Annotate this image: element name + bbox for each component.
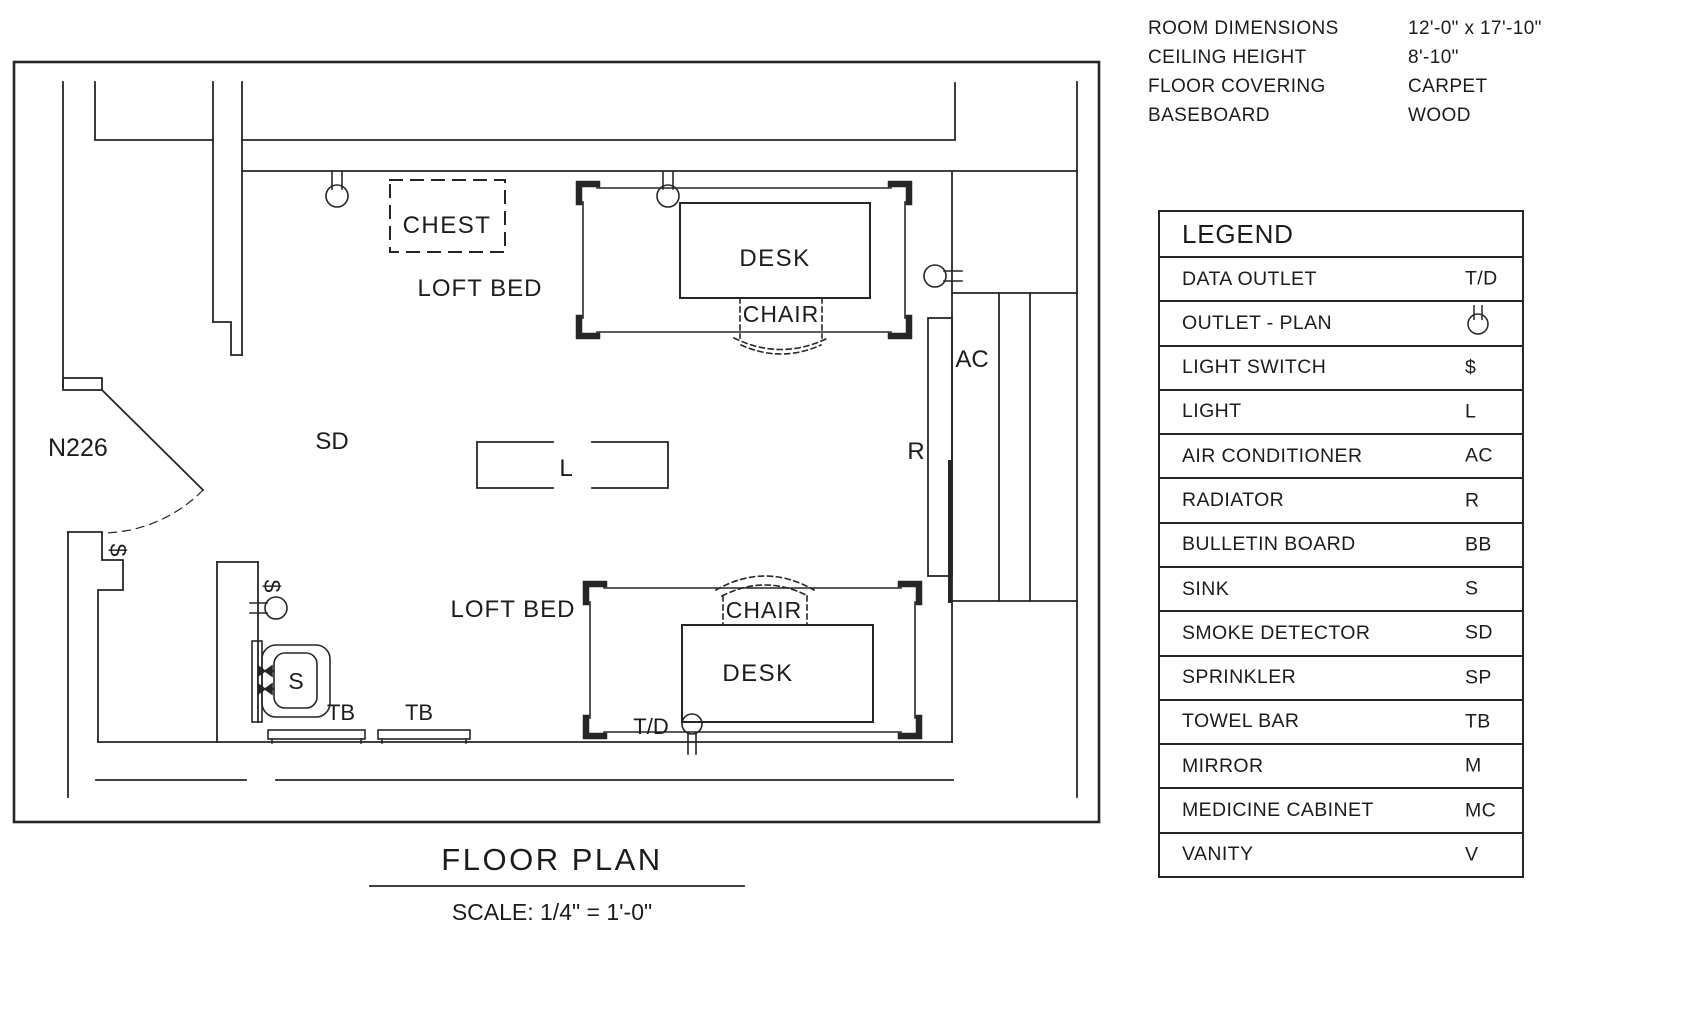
legend-label: SPRINKLER bbox=[1160, 666, 1296, 689]
legend-symbol: SP bbox=[1465, 666, 1492, 689]
legend-label: TOWEL BAR bbox=[1160, 710, 1299, 733]
legend-label: AIR CONDITIONER bbox=[1160, 445, 1362, 468]
ac-label: AC bbox=[955, 346, 988, 373]
outlet-bed-top bbox=[657, 172, 679, 207]
desk-bottom-label: DESK bbox=[722, 660, 793, 687]
floor-plan-sheet: N226 CHEST LOFT BED DESK CHAIR LOFT BED … bbox=[0, 0, 1682, 1026]
legend-label: SINK bbox=[1160, 578, 1229, 601]
legend-symbol: L bbox=[1465, 400, 1476, 423]
legend-label: LIGHT SWITCH bbox=[1160, 356, 1326, 379]
legend-row-medicine-cabinet: MEDICINE CABINET MC bbox=[1160, 789, 1522, 833]
legend-label: DATA OUTLET bbox=[1160, 268, 1317, 291]
light-switch-bath-label: $ bbox=[259, 580, 285, 593]
legend-row-air-conditioner: AIR CONDITIONER AC bbox=[1160, 435, 1522, 479]
radiator-label: R bbox=[907, 438, 924, 465]
desk-top-label: DESK bbox=[739, 245, 810, 272]
chest-label: CHEST bbox=[403, 212, 492, 239]
room-info-row: BASEBOARD WOOD bbox=[1148, 101, 1678, 130]
legend-symbol: R bbox=[1465, 489, 1479, 512]
loft-bed-bottom-label: LOFT BED bbox=[451, 596, 576, 623]
plan-title: FLOOR PLAN bbox=[441, 842, 662, 877]
legend-symbol: V bbox=[1465, 843, 1478, 866]
legend-row-radiator: RADIATOR R bbox=[1160, 479, 1522, 523]
legend-row-towel-bar: TOWEL BAR TB bbox=[1160, 701, 1522, 745]
chair-top-label: CHAIR bbox=[743, 301, 820, 327]
legend-title: LEGEND bbox=[1160, 212, 1522, 258]
outlet-top-wall bbox=[326, 171, 348, 207]
legend-table: LEGEND DATA OUTLET T/D OUTLET - PLAN LIG… bbox=[1158, 210, 1524, 878]
light-switch-door-label: $ bbox=[105, 544, 131, 557]
room-info-label: BASEBOARD bbox=[1148, 101, 1270, 130]
data-outlet-symbol bbox=[682, 714, 702, 754]
plan-scale-note: SCALE: 1/4" = 1'-0" bbox=[452, 899, 652, 925]
legend-row-outlet-plan: OUTLET - PLAN bbox=[1160, 302, 1522, 346]
sink-label: S bbox=[288, 668, 303, 694]
legend-row-sprinkler: SPRINKLER SP bbox=[1160, 657, 1522, 701]
legend-symbol: $ bbox=[1465, 356, 1476, 379]
radiator bbox=[928, 318, 952, 601]
legend-symbol: M bbox=[1465, 755, 1482, 778]
towel-bar-left bbox=[268, 730, 365, 743]
legend-symbol: SD bbox=[1465, 622, 1493, 645]
legend-label: LIGHT bbox=[1160, 400, 1241, 423]
legend-row-vanity: VANITY V bbox=[1160, 834, 1522, 876]
light-label: L bbox=[559, 455, 572, 482]
legend-row-data-outlet: DATA OUTLET T/D bbox=[1160, 258, 1522, 302]
loft-bed-top-label: LOFT BED bbox=[418, 275, 543, 302]
door-jamb bbox=[63, 378, 102, 390]
room-info-label: CEILING HEIGHT bbox=[1148, 43, 1307, 72]
smoke-detector-label: SD bbox=[315, 428, 348, 455]
duplex-outlet-icon bbox=[1465, 303, 1491, 343]
window-bay bbox=[952, 293, 1077, 601]
plan-outer-border bbox=[14, 62, 1099, 822]
outlet-right-wall bbox=[924, 265, 962, 287]
room-info-row: FLOOR COVERING CARPET bbox=[1148, 72, 1678, 101]
legend-symbol: MC bbox=[1465, 799, 1496, 822]
legend-row-bulletin-board: BULLETIN BOARD BB bbox=[1160, 524, 1522, 568]
legend-label: BULLETIN BOARD bbox=[1160, 533, 1356, 556]
legend-label: VANITY bbox=[1160, 843, 1253, 866]
chair-bottom-label: CHAIR bbox=[726, 597, 803, 623]
room-info-row: ROOM DIMENSIONS 12'-0" x 17'-10" bbox=[1148, 14, 1678, 43]
legend-symbol: BB bbox=[1465, 533, 1492, 556]
walls bbox=[63, 82, 1077, 797]
door-swing bbox=[102, 390, 203, 533]
legend-label: MEDICINE CABINET bbox=[1160, 799, 1374, 822]
legend-label: OUTLET - PLAN bbox=[1160, 312, 1332, 335]
legend-symbol: T/D bbox=[1465, 268, 1498, 291]
room-info-value: 12'-0" x 17'-10" bbox=[1408, 14, 1542, 43]
legend-row-light: LIGHT L bbox=[1160, 391, 1522, 435]
legend-label: SMOKE DETECTOR bbox=[1160, 622, 1370, 645]
legend-label: RADIATOR bbox=[1160, 489, 1284, 512]
towel-bar-right bbox=[378, 730, 470, 743]
room-info-value: CARPET bbox=[1408, 72, 1487, 101]
legend-row-smoke-detector: SMOKE DETECTOR SD bbox=[1160, 612, 1522, 656]
legend-row-sink: SINK S bbox=[1160, 568, 1522, 612]
towel-bar-right-label: TB bbox=[405, 700, 433, 725]
outlet-bath-wall bbox=[250, 597, 287, 619]
legend-symbol: AC bbox=[1465, 445, 1493, 468]
legend-symbol: TB bbox=[1465, 710, 1491, 733]
room-info-row: CEILING HEIGHT 8'-10" bbox=[1148, 43, 1678, 72]
room-info-value: WOOD bbox=[1408, 101, 1471, 130]
legend-row-mirror: MIRROR M bbox=[1160, 745, 1522, 789]
legend-symbol: S bbox=[1465, 578, 1478, 601]
room-info-label: ROOM DIMENSIONS bbox=[1148, 14, 1339, 43]
data-outlet-label: T/D bbox=[633, 714, 668, 739]
legend-label: MIRROR bbox=[1160, 755, 1263, 778]
room-info-block: ROOM DIMENSIONS 12'-0" x 17'-10" CEILING… bbox=[1148, 14, 1678, 130]
room-info-value: 8'-10" bbox=[1408, 43, 1459, 72]
room-number-label: N226 bbox=[48, 434, 108, 462]
towel-bar-left-label: TB bbox=[327, 700, 355, 725]
room-info-label: FLOOR COVERING bbox=[1148, 72, 1326, 101]
legend-row-light-switch: LIGHT SWITCH $ bbox=[1160, 347, 1522, 391]
